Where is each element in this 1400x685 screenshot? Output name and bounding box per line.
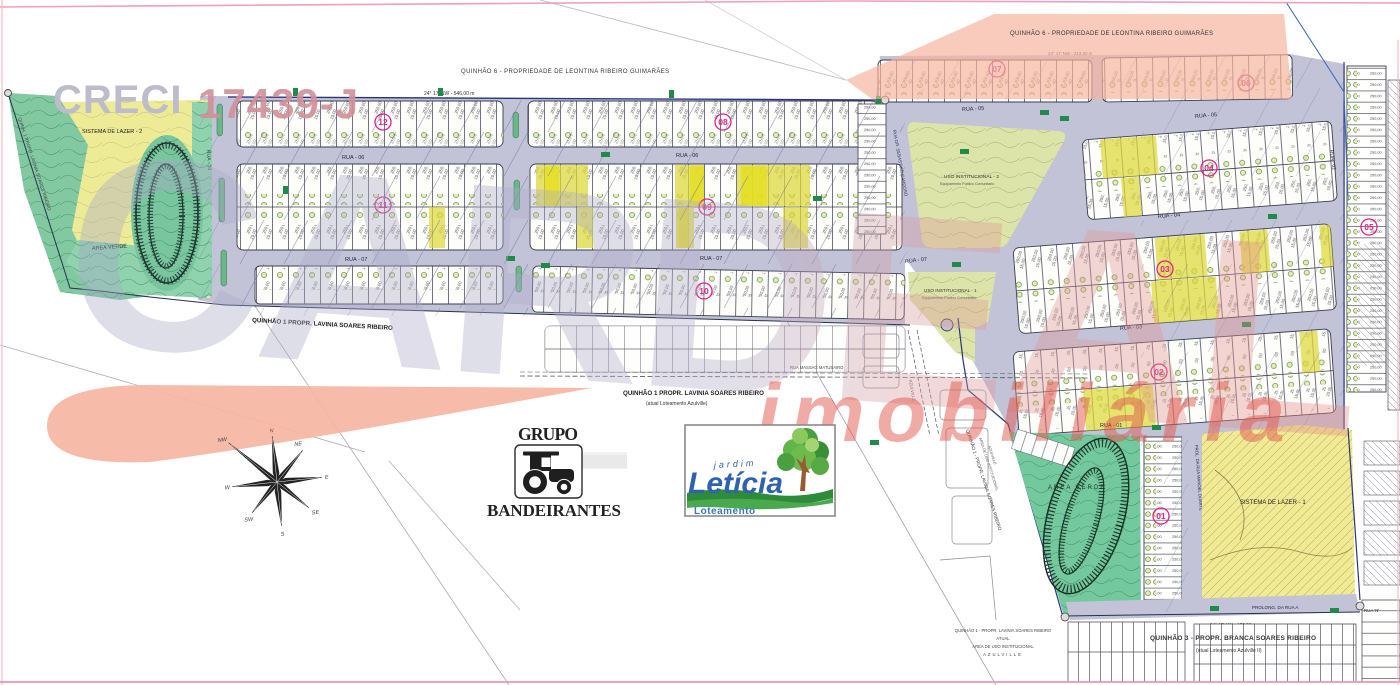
svg-text:PROLONG. DA RUA A: PROLONG. DA RUA A (1252, 605, 1299, 610)
svg-text:RUA 'N': RUA 'N' (1364, 608, 1379, 613)
svg-text:AREA VERDE: AREA VERDE (1048, 485, 1106, 491)
svg-text:NE: NE (294, 441, 303, 448)
svg-text:N: N (269, 428, 274, 434)
svg-text:CRECI: CRECI (53, 78, 182, 122)
svg-text:17439-J: 17439-J (198, 80, 359, 127)
svg-text:(atual Loteamento Azulville I: (atual Loteamento Azulville II) (1196, 648, 1262, 654)
svg-text:imobiliária: imobiliária (757, 368, 1285, 459)
svg-text:08: 08 (718, 117, 728, 127)
svg-text:SISTEMA DE LAZER - 1: SISTEMA DE LAZER - 1 (1240, 500, 1306, 506)
svg-text:ATUAL: ATUAL (996, 636, 1010, 641)
svg-text:01: 01 (1156, 511, 1166, 521)
svg-text:AREA DE USO INSTITUCIONAL: AREA DE USO INSTITUCIONAL (972, 644, 1034, 649)
svg-text:QUINHÃO 3 - PROPR. BRANCA SOAR: QUINHÃO 3 - PROPR. BRANCA SOARES RIBEIRO (1150, 633, 1316, 642)
svg-text:04: 04 (1204, 163, 1214, 173)
svg-text:QUINHÃO 6 - PROPRIEDADE DE LEO: QUINHÃO 6 - PROPRIEDADE DE LEONTINA RIBE… (1010, 30, 1213, 37)
svg-text:SE: SE (312, 510, 320, 517)
svg-text:AZULVILLE: AZULVILLE (983, 652, 1023, 657)
svg-text:RUA - 05: RUA - 05 (962, 106, 985, 113)
svg-text:NW: NW (217, 437, 228, 444)
svg-text:QUINHÃO 1 - PROPR. LAVINIA SOA: QUINHÃO 1 - PROPR. LAVINIA SOARES RIBEIR… (955, 628, 1052, 633)
svg-text:GRUPO: GRUPO (518, 424, 578, 444)
svg-text:Letícia: Letícia (688, 467, 783, 500)
svg-text:24° 17' NW - 546,00 m: 24° 17' NW - 546,00 m (424, 91, 474, 97)
svg-text:Loteamento: Loteamento (694, 506, 756, 517)
svg-text:SW: SW (244, 517, 254, 524)
svg-text:QUINHÃO 6 - PROPRIEDADE DE LEO: QUINHÃO 6 - PROPRIEDADE DE LEONTINA RIBE… (461, 68, 670, 75)
svg-text:BANDEIRANTES: BANDEIRANTES (487, 501, 621, 520)
